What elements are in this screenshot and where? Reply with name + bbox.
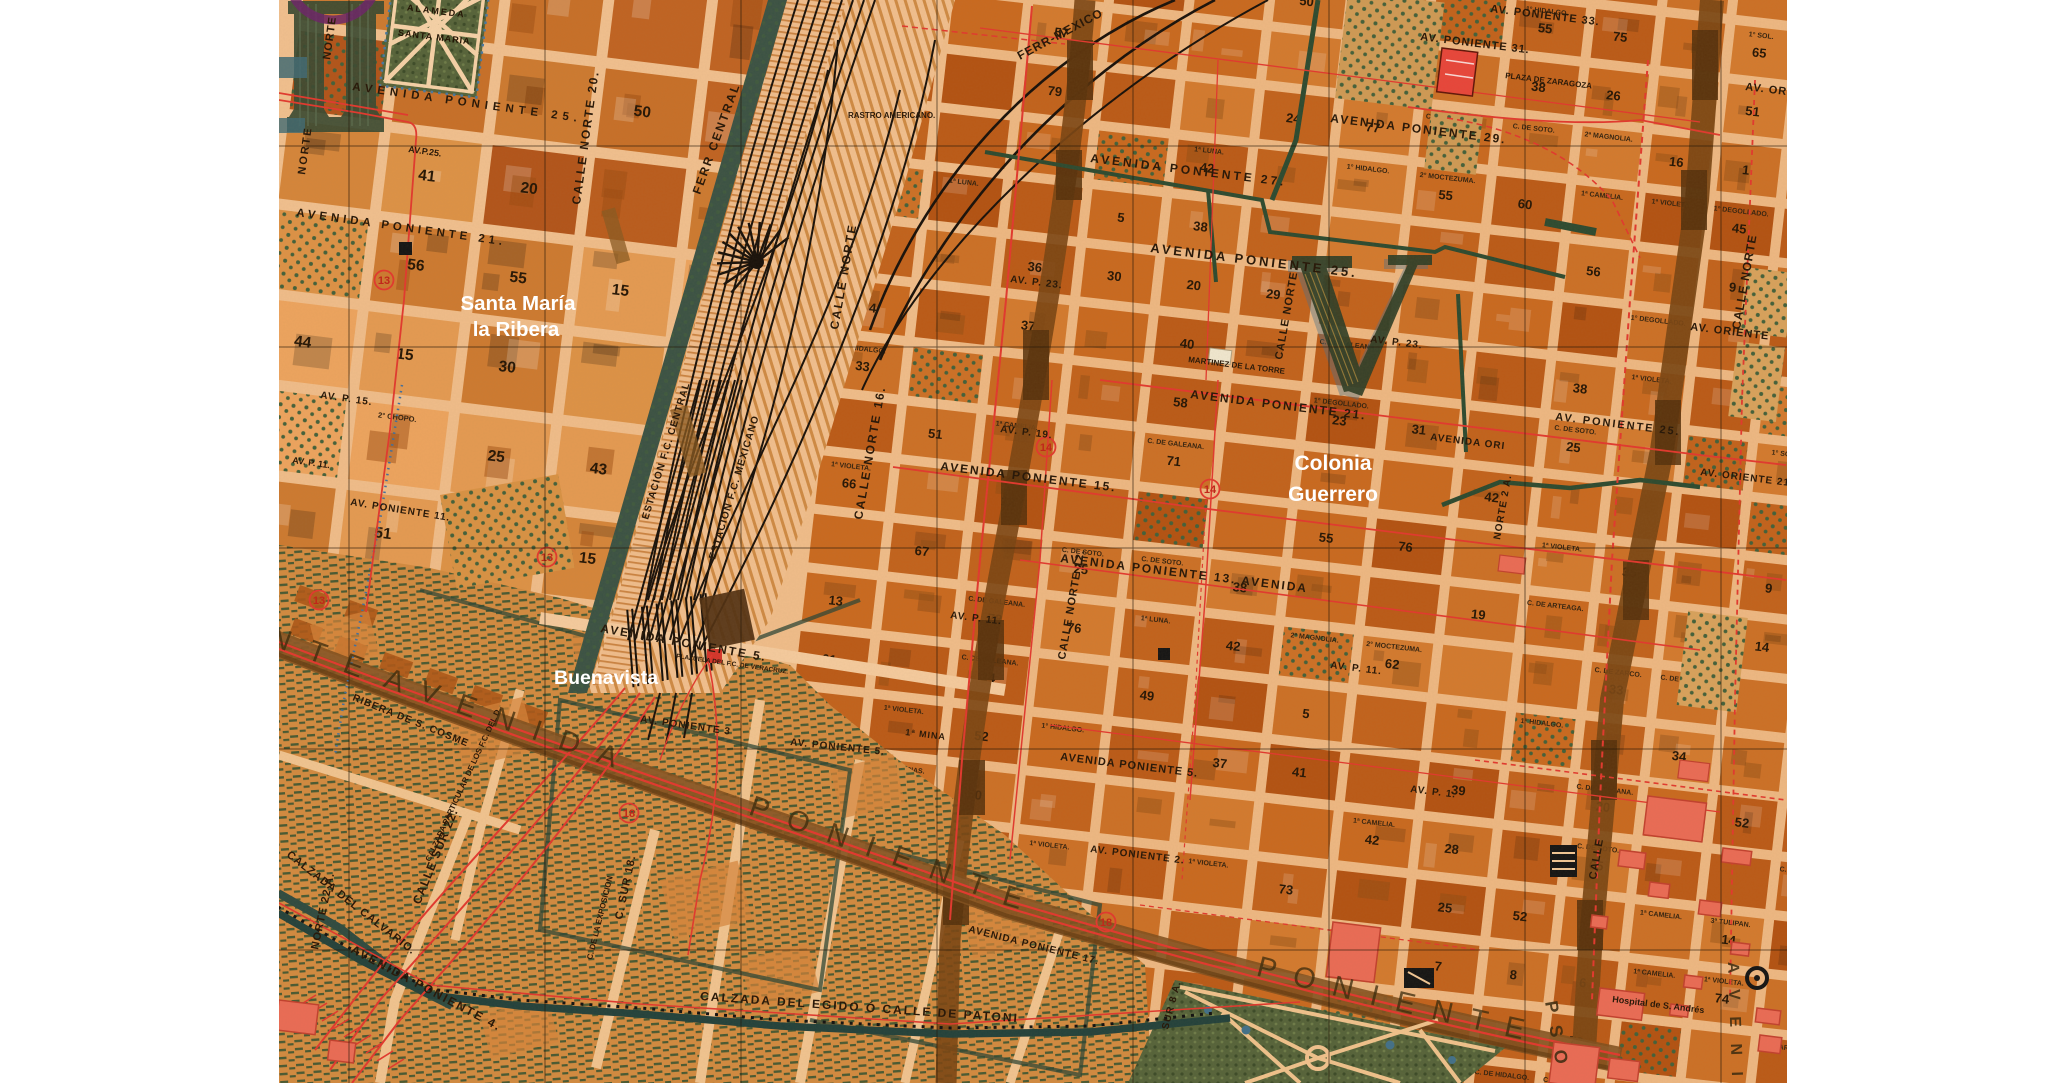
svg-text:Buenavista: Buenavista (554, 667, 658, 689)
svg-text:RASTRO AMERICANO.: RASTRO AMERICANO. (848, 111, 935, 120)
svg-text:Guerrero: Guerrero (1288, 483, 1378, 506)
svg-text:la Ribera: la Ribera (473, 318, 560, 341)
svg-text:Santa María: Santa María (460, 292, 576, 315)
svg-text:Colonia: Colonia (1295, 452, 1372, 475)
